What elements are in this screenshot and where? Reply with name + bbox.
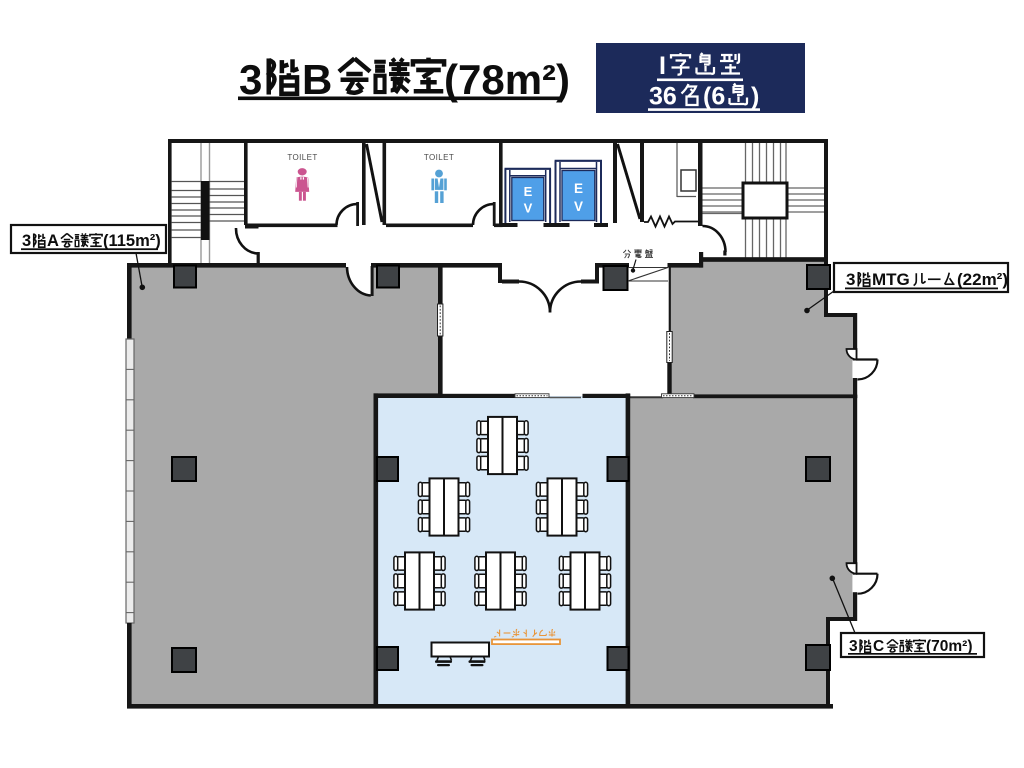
svg-text:TOILET: TOILET <box>287 153 317 162</box>
svg-text:V: V <box>524 201 533 216</box>
svg-text:(78m²): (78m²) <box>444 56 570 103</box>
svg-text:TOILET: TOILET <box>424 153 454 162</box>
svg-text:3: 3 <box>22 232 31 250</box>
svg-text:B: B <box>302 56 332 103</box>
svg-text:(115m²): (115m²) <box>103 232 161 250</box>
svg-text:3: 3 <box>239 56 262 103</box>
svg-text:C: C <box>873 638 884 655</box>
svg-text:(22m²): (22m²) <box>957 270 1008 289</box>
svg-text:36: 36 <box>649 83 677 111</box>
svg-text:3: 3 <box>849 638 858 655</box>
svg-text:A: A <box>47 232 59 250</box>
svg-text:E: E <box>574 181 583 196</box>
svg-text:3: 3 <box>846 270 855 289</box>
svg-text:(6: (6 <box>703 83 725 111</box>
svg-text:E: E <box>524 184 533 199</box>
svg-text:I: I <box>659 52 666 80</box>
svg-text:): ) <box>751 83 759 111</box>
svg-text:(70m²): (70m²) <box>926 638 973 655</box>
svg-text:MTG: MTG <box>872 270 910 289</box>
svg-text:V: V <box>574 199 583 214</box>
